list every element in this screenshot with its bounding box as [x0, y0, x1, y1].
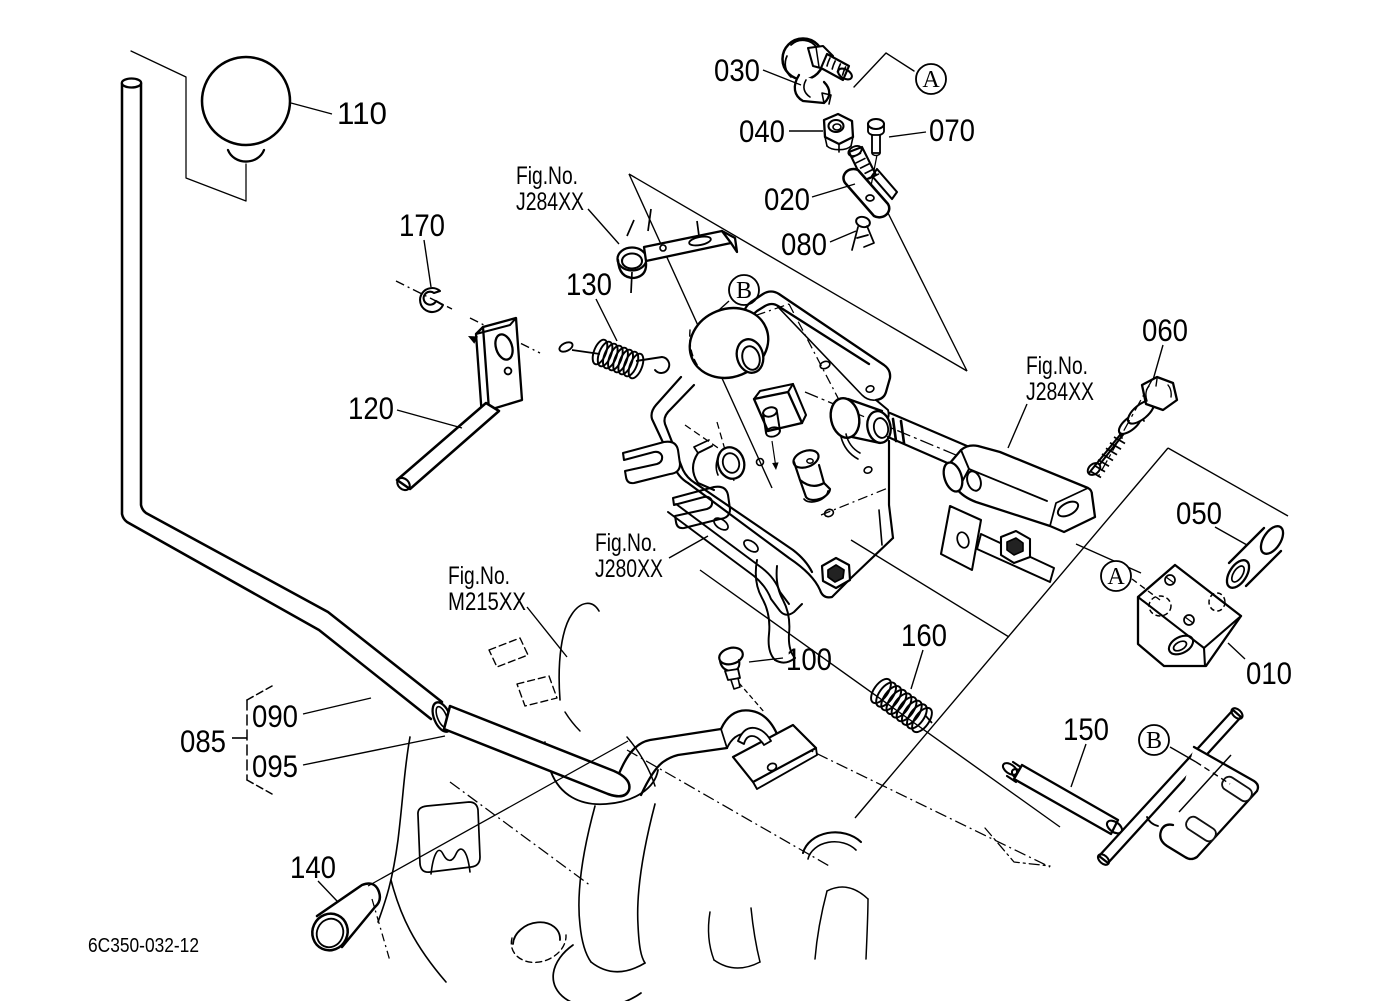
svg-text:170: 170	[399, 207, 445, 243]
svg-text:A: A	[922, 67, 940, 93]
svg-text:090: 090	[252, 698, 298, 734]
svg-text:B: B	[736, 278, 752, 304]
svg-text:050: 050	[1176, 495, 1222, 531]
svg-text:160: 160	[901, 617, 947, 653]
svg-text:M215XX: M215XX	[448, 588, 526, 616]
svg-text:070: 070	[929, 112, 975, 148]
svg-text:085: 085	[180, 723, 226, 759]
svg-text:J284XX: J284XX	[1026, 378, 1094, 406]
svg-text:010: 010	[1246, 655, 1292, 691]
svg-text:110: 110	[337, 95, 387, 131]
svg-text:A: A	[1107, 564, 1125, 590]
svg-text:J284XX: J284XX	[516, 188, 584, 216]
svg-text:030: 030	[714, 52, 760, 88]
svg-text:080: 080	[781, 226, 827, 262]
svg-text:6C350-032-12: 6C350-032-12	[88, 935, 199, 957]
svg-text:150: 150	[1063, 711, 1109, 747]
svg-text:Fig.No.: Fig.No.	[448, 562, 510, 590]
svg-text:020: 020	[764, 181, 810, 217]
svg-text:095: 095	[252, 748, 298, 784]
svg-text:120: 120	[348, 390, 394, 426]
svg-text:040: 040	[739, 113, 785, 149]
svg-text:B: B	[1146, 728, 1162, 754]
svg-text:060: 060	[1142, 312, 1188, 348]
svg-text:J280XX: J280XX	[595, 555, 663, 583]
svg-text:Fig.No.: Fig.No.	[516, 162, 578, 190]
svg-text:140: 140	[290, 849, 336, 885]
svg-text:100: 100	[786, 641, 832, 677]
svg-text:Fig.No.: Fig.No.	[1026, 352, 1088, 380]
svg-text:Fig.No.: Fig.No.	[595, 529, 657, 557]
svg-text:130: 130	[566, 266, 612, 302]
